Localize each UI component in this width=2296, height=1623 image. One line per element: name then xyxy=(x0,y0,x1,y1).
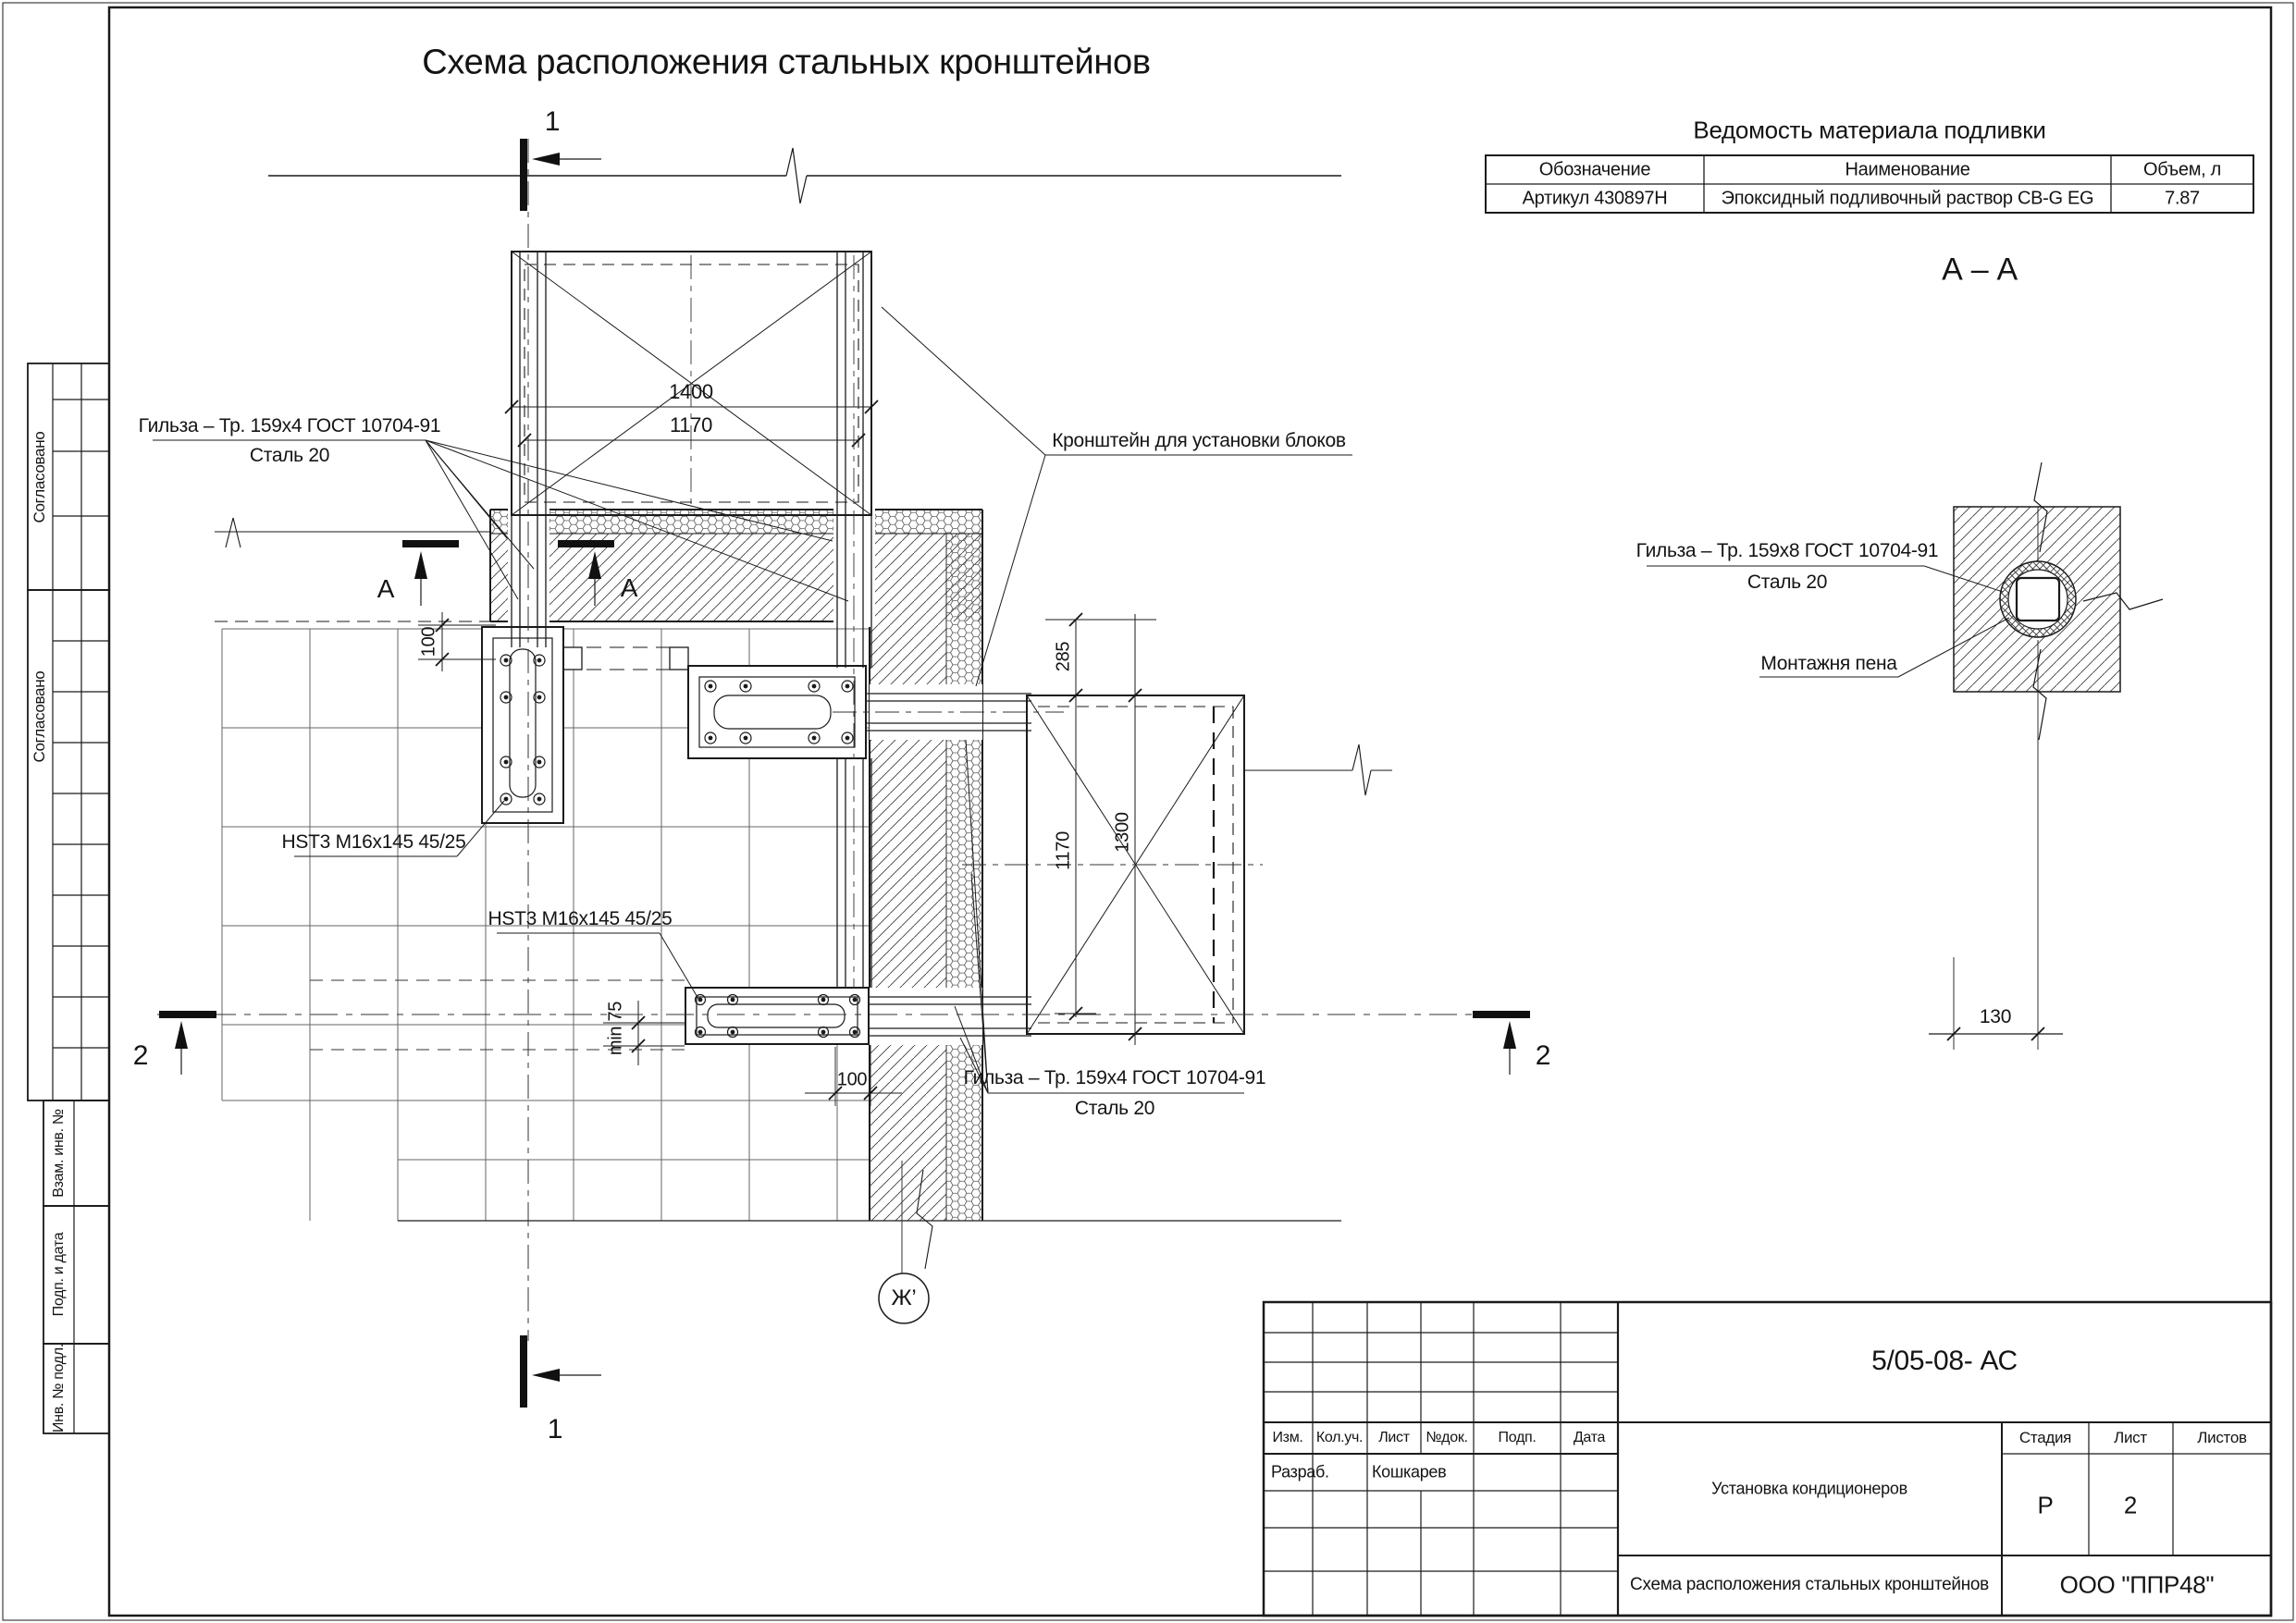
tb-developer-label: Разраб. xyxy=(1271,1463,1329,1482)
materials-col-name: Наименование xyxy=(1845,160,1969,181)
bracket-plates-fill xyxy=(482,627,869,1044)
tb-sheets-label: Листов xyxy=(2197,1429,2246,1447)
tb-header-koluch: Кол.уч. xyxy=(1316,1430,1363,1446)
marker-a-left: А xyxy=(377,574,394,604)
sidebar-podp: Подп. и дата xyxy=(51,1233,68,1317)
dim-100-bottom: 100 xyxy=(837,1070,867,1091)
sleeve-bottom-label-line2: Сталь 20 xyxy=(1075,1098,1154,1120)
materials-col-volume: Объем, л xyxy=(2143,160,2221,181)
drawing-sheet: Схема расположения стальных кронштейнов … xyxy=(0,0,2296,1623)
dim-1170-right: 1170 xyxy=(1054,831,1075,870)
axis-bubble-label: Ж’ xyxy=(892,1285,917,1311)
sidebar-vzam: Взам. инв. № xyxy=(51,1109,68,1198)
aa-sleeve-label-line1: Гильза – Тр. 159х8 ГОСТ 10704-91 xyxy=(1636,540,1939,562)
anchor-label-2: HST3 M16x145 45/25 xyxy=(488,908,673,930)
aa-foam-label: Монтажня пена xyxy=(1760,653,1896,675)
page-title: Схема расположения стальных кронштейнов xyxy=(422,43,1151,83)
title-block-lines xyxy=(1264,1302,2271,1616)
dim-min-75: min 75 xyxy=(606,1002,627,1055)
marker-1-top: 1 xyxy=(545,106,560,138)
section-markers xyxy=(159,139,1530,1408)
tb-drawing-title: Схема расположения стальных кронштейнов xyxy=(1630,1575,1989,1595)
anchor-label-1: HST3 M16x145 45/25 xyxy=(282,831,466,854)
sidebar-approved-1: Согласовано xyxy=(31,432,49,523)
sidebar-inv: Инв. № подл. xyxy=(51,1344,68,1432)
tb-developer-name: Кошкарев xyxy=(1372,1463,1446,1482)
tb-doc-number: 5/05-08- АС xyxy=(1871,1346,2018,1377)
aa-sleeve-label-line2: Сталь 20 xyxy=(1747,572,1827,594)
dim-285: 285 xyxy=(1054,642,1075,671)
tb-header-ndok: №док. xyxy=(1426,1430,1467,1446)
drawing-linework xyxy=(0,0,2296,1623)
tb-sheet-label: Лист xyxy=(2114,1429,2147,1447)
marker-a-right: А xyxy=(621,573,637,603)
dim-1170-top: 1170 xyxy=(670,413,712,437)
marker-2-left: 2 xyxy=(133,1040,148,1072)
dim-1300: 1300 xyxy=(1113,812,1134,852)
marker-1-bottom: 1 xyxy=(548,1414,562,1445)
materials-cell-volume: 7.87 xyxy=(2165,189,2200,210)
sleeve-bottom-label-line1: Гильза – Тр. 159х4 ГОСТ 10704-91 xyxy=(964,1067,1266,1089)
sleeve-top-label-line2: Сталь 20 xyxy=(250,445,329,467)
materials-col-designation: Обозначение xyxy=(1539,160,1650,181)
materials-table-title: Ведомость материала подливки xyxy=(1693,117,2045,145)
aa-dim-130: 130 xyxy=(1980,1006,2011,1028)
bracket-label: Кронштейн для установки блоков xyxy=(1052,430,1346,452)
sleeve-top-label-line1: Гильза – Тр. 159х4 ГОСТ 10704-91 xyxy=(139,415,441,437)
walls xyxy=(215,510,1341,1221)
tb-stage-value: Р xyxy=(2037,1492,2053,1520)
tb-stage-label: Стадия xyxy=(2019,1429,2071,1447)
section-aa-title: А – А xyxy=(1942,252,2018,289)
dim-100-left: 100 xyxy=(419,627,440,657)
tb-project: Установка кондиционеров xyxy=(1711,1480,1907,1499)
marker-2-right: 2 xyxy=(1536,1040,1550,1072)
sheet-frame xyxy=(3,3,2293,1620)
dim-1400: 1400 xyxy=(669,380,713,404)
tb-header-podp: Подп. xyxy=(1499,1430,1537,1446)
tb-sheet-value: 2 xyxy=(2124,1492,2137,1520)
tb-company: ООО "ППР48" xyxy=(2060,1571,2215,1600)
tb-header-izm: Изм. xyxy=(1272,1430,1302,1446)
tb-header-list: Лист xyxy=(1378,1430,1410,1446)
sidebar-approved-2: Согласовано xyxy=(31,671,49,763)
materials-cell-name: Эпоксидный подливочный раствор CB-G EG xyxy=(1722,189,2094,210)
materials-cell-article: Артикул 430897Н xyxy=(1523,189,1668,210)
sidebar-stamps xyxy=(28,363,109,1433)
tb-header-data: Дата xyxy=(1574,1430,1605,1446)
